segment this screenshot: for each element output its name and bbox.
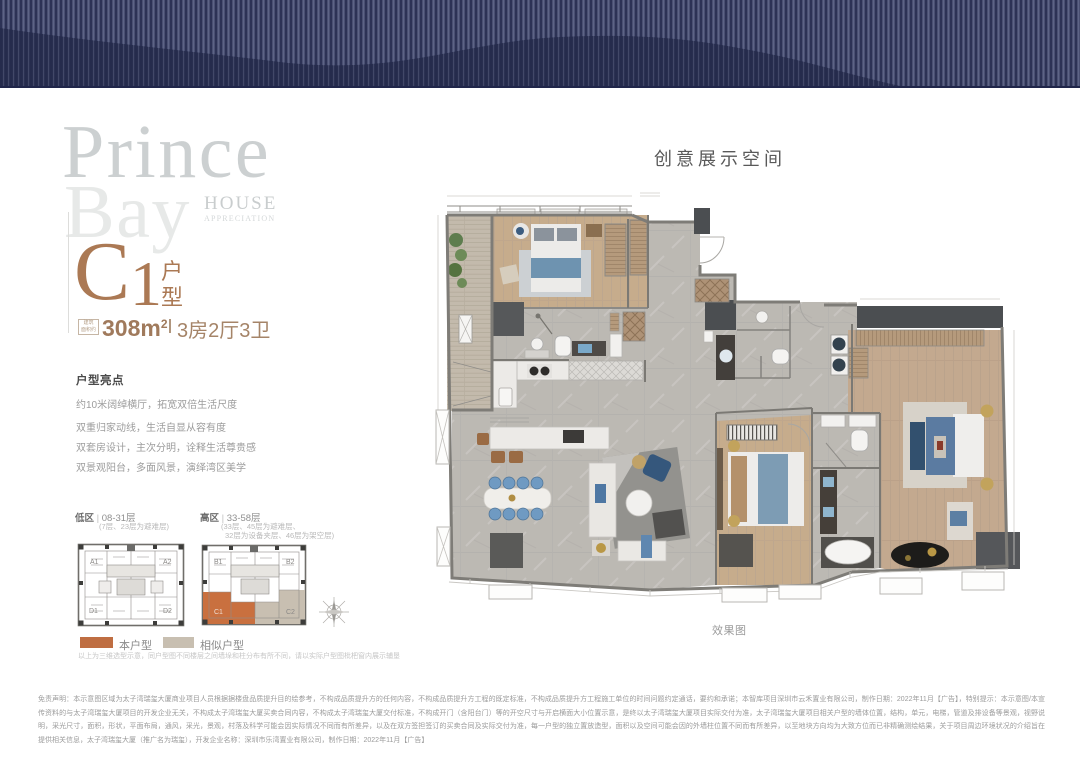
svg-text:A1: A1	[90, 559, 99, 566]
svg-text:D2: D2	[163, 608, 172, 615]
svg-text:C2: C2	[286, 609, 295, 616]
svg-text:D1: D1	[89, 608, 98, 615]
svg-text:A2: A2	[163, 559, 172, 566]
svg-text:C1: C1	[214, 609, 223, 616]
svg-text:B1: B1	[214, 559, 223, 566]
svg-text:B2: B2	[286, 559, 295, 566]
